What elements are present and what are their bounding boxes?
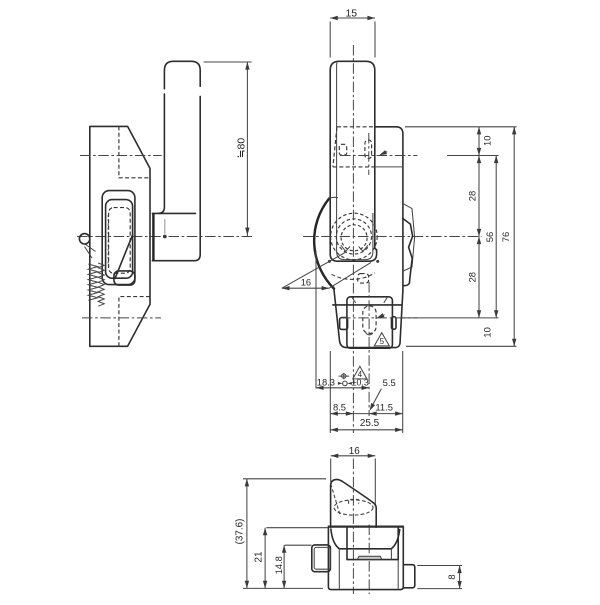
svg-text:8.5: 8.5 bbox=[333, 401, 346, 412]
svg-text:8: 8 bbox=[446, 574, 457, 579]
svg-text:28: 28 bbox=[466, 272, 477, 282]
svg-text:56: 56 bbox=[484, 232, 495, 242]
svg-text:16: 16 bbox=[301, 277, 311, 287]
svg-text:4: 4 bbox=[358, 370, 363, 379]
svg-text:10: 10 bbox=[481, 327, 492, 337]
svg-text:21: 21 bbox=[253, 551, 264, 562]
svg-text:18.3: 18.3 bbox=[317, 377, 335, 388]
svg-text:(37.6): (37.6) bbox=[234, 519, 245, 545]
svg-text:28: 28 bbox=[466, 191, 477, 201]
svg-text:5: 5 bbox=[380, 337, 385, 346]
svg-text:10: 10 bbox=[481, 136, 492, 146]
svg-text:5.5: 5.5 bbox=[383, 377, 396, 388]
svg-text:76: 76 bbox=[500, 232, 511, 242]
svg-text:25.5: 25.5 bbox=[360, 418, 380, 429]
svg-text:≒80: ≒80 bbox=[236, 138, 248, 159]
svg-text:11.5: 11.5 bbox=[375, 401, 393, 412]
svg-text:14.8: 14.8 bbox=[273, 556, 284, 574]
